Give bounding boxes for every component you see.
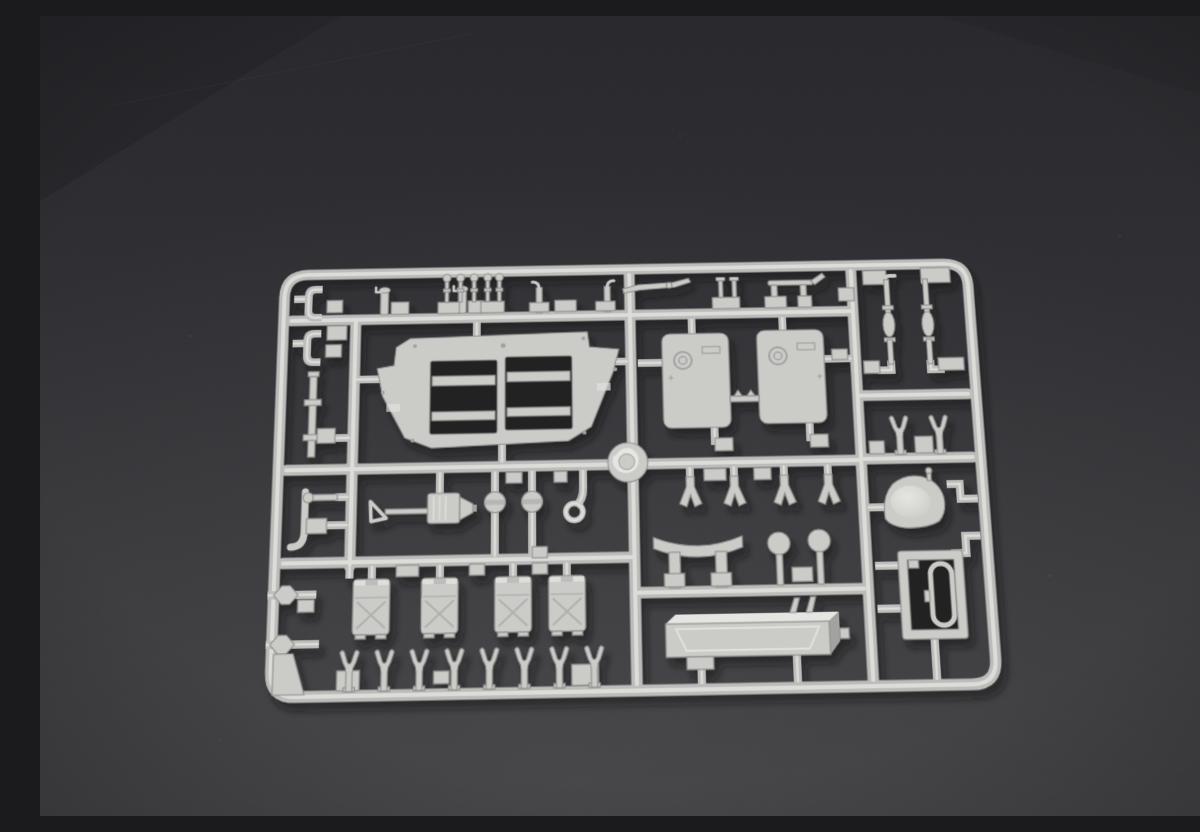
light-grille-stem	[817, 551, 825, 585]
dome-hatch	[882, 467, 946, 528]
knob-rod	[303, 492, 337, 503]
curved-bracket	[653, 536, 744, 588]
collared-rod	[303, 371, 337, 457]
gate-block	[391, 302, 409, 314]
door-hatch-left	[662, 333, 734, 452]
tow-fork	[480, 648, 499, 689]
gate-block	[838, 288, 854, 301]
cap-pin	[730, 277, 739, 297]
gate-block	[915, 436, 934, 453]
door-link	[730, 390, 759, 402]
mushroom-pin	[495, 273, 503, 301]
corner-wedge	[272, 654, 305, 696]
gate-block	[532, 547, 547, 558]
sprue-tilt-wrapper	[40, 35, 1200, 816]
shackle	[679, 477, 702, 507]
c-clamp	[308, 290, 323, 318]
tow-fork	[515, 647, 534, 688]
gate-block	[327, 300, 343, 312]
tank-clip	[805, 597, 816, 613]
light-grille-stem	[776, 553, 783, 585]
gate-block	[938, 357, 964, 370]
gate-block	[754, 468, 771, 480]
gate-block	[438, 302, 460, 314]
light-grille	[808, 529, 831, 552]
stowage-boxes	[352, 562, 586, 639]
gate-block	[529, 302, 549, 312]
gate-block	[326, 345, 342, 358]
light-grilles	[767, 529, 832, 585]
gate-block	[433, 671, 449, 684]
gate-block	[596, 301, 616, 311]
mushroom-pin	[470, 274, 478, 302]
light-grille	[767, 532, 790, 555]
gate-block	[327, 326, 347, 341]
roller	[484, 492, 505, 513]
gate-block	[554, 471, 567, 482]
gate-block	[687, 657, 714, 670]
gate-block	[396, 565, 419, 577]
suspension-rod	[880, 276, 900, 365]
tank-clip	[789, 598, 800, 613]
handle-bar	[764, 273, 827, 308]
cap-pin	[716, 277, 725, 297]
sprue-hub	[607, 442, 648, 482]
stowage-box	[352, 579, 390, 639]
z-bracket	[947, 484, 978, 499]
gate-block	[704, 468, 726, 480]
gate-block	[864, 361, 880, 374]
hatch-frame	[898, 550, 969, 639]
c-clamp	[307, 334, 322, 363]
tow-ring	[566, 503, 583, 520]
door-hatch-right	[756, 329, 852, 448]
photo-model-kit-sprue: Overhead photograph of a light grey inje…	[40, 16, 1200, 816]
gate-block	[506, 472, 522, 483]
gate-block	[481, 301, 504, 313]
mushroom-pin	[484, 274, 492, 302]
shackle-row	[679, 466, 841, 507]
sprue	[40, 35, 1200, 816]
pump-assembly	[370, 493, 477, 525]
gate-block	[869, 441, 885, 454]
tow-fork	[409, 649, 428, 690]
stowage-box	[495, 576, 532, 636]
hull-bottom-plate	[376, 331, 621, 449]
roller	[522, 491, 543, 512]
gate-block	[532, 563, 547, 574]
gate-block	[792, 567, 813, 582]
shackle	[773, 475, 796, 505]
sprue-assembly	[264, 263, 998, 697]
stowage-box	[549, 575, 586, 635]
stowage-box	[421, 578, 458, 638]
gate-block	[469, 564, 484, 575]
tow-fork	[374, 650, 394, 691]
gate-block	[297, 600, 314, 613]
fuel-tank	[665, 596, 851, 670]
tow-fork	[889, 416, 910, 455]
suspension-rod	[919, 275, 940, 364]
tow-fork-row	[336, 646, 604, 692]
tank-tab	[840, 628, 850, 639]
gate-block	[555, 300, 577, 312]
gate-block	[712, 297, 740, 309]
mushroom-pin	[443, 274, 451, 302]
tow-fork	[550, 647, 569, 688]
shackle	[817, 474, 841, 504]
bollard-pin	[376, 287, 391, 314]
